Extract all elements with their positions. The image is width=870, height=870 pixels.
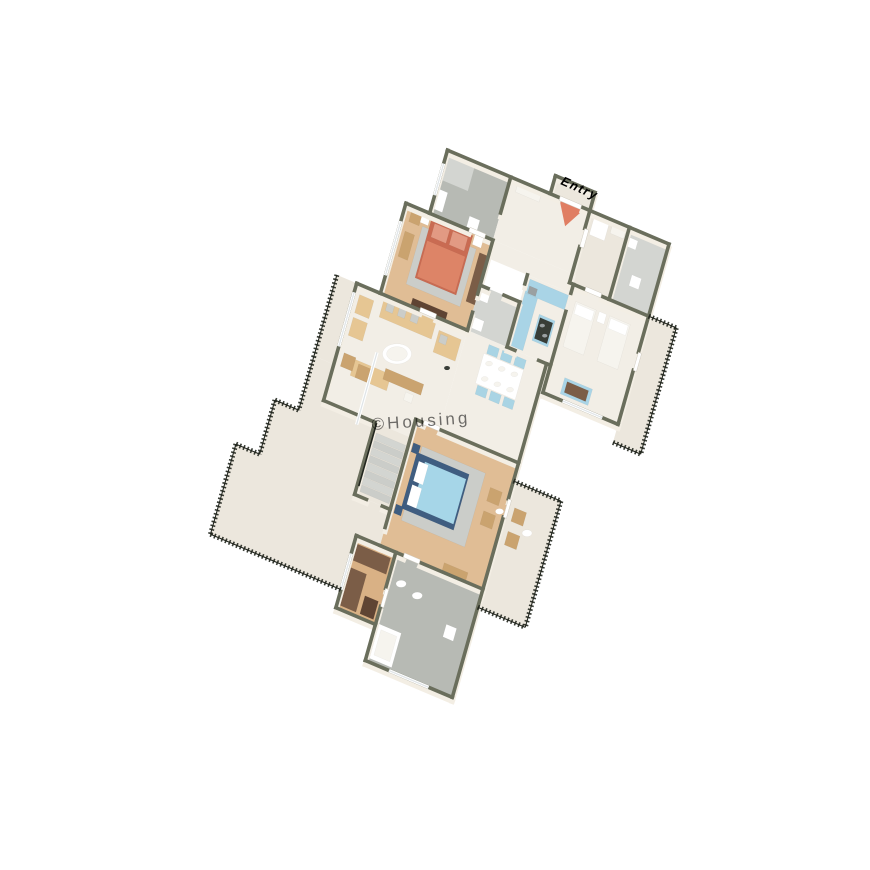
- plate: [481, 376, 488, 381]
- balcony-table: [522, 530, 532, 537]
- basin: [396, 580, 406, 587]
- floor-plan-svg: Entry ©Housing: [0, 0, 870, 870]
- side-table: [495, 509, 503, 515]
- plate: [498, 367, 505, 372]
- burner: [540, 324, 545, 328]
- wall: [571, 284, 574, 293]
- basin: [412, 592, 422, 599]
- burner: [542, 334, 547, 338]
- coffee-table-top: [387, 347, 408, 362]
- plate: [486, 361, 493, 366]
- plate: [494, 382, 501, 387]
- plate: [507, 387, 514, 392]
- wall: [525, 275, 528, 284]
- floor-plan-render: Entry ©Housing: [0, 0, 870, 870]
- plate: [511, 372, 518, 377]
- floor-lamp: [444, 366, 450, 370]
